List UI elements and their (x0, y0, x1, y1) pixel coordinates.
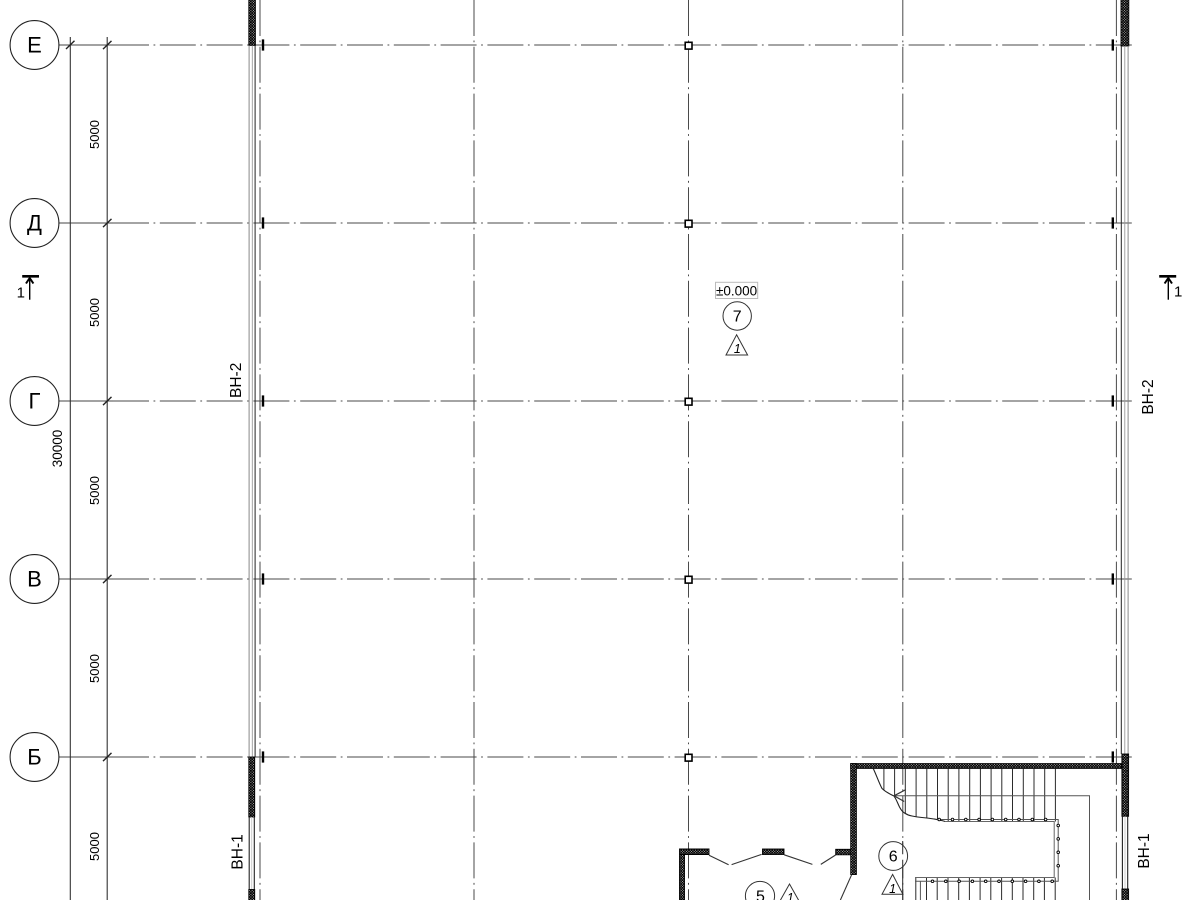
svg-text:6: 6 (889, 849, 898, 866)
svg-text:5000: 5000 (87, 832, 102, 861)
svg-text:30000: 30000 (50, 430, 65, 468)
svg-text:5000: 5000 (87, 476, 102, 505)
svg-text:1: 1 (17, 285, 25, 302)
svg-text:ВН-2: ВН-2 (228, 363, 245, 398)
svg-text:ВН-1: ВН-1 (1136, 833, 1153, 868)
svg-text:1: 1 (1174, 284, 1182, 301)
svg-text:ВН-2: ВН-2 (1140, 379, 1157, 414)
svg-text:5000: 5000 (87, 120, 102, 149)
svg-text:Д: Д (27, 211, 42, 236)
svg-text:±0.000: ±0.000 (716, 283, 757, 298)
svg-text:5: 5 (756, 889, 765, 901)
svg-text:ВН-1: ВН-1 (229, 834, 246, 869)
svg-text:Б: Б (27, 745, 41, 770)
svg-text:Е: Е (27, 33, 42, 58)
svg-text:5000: 5000 (87, 654, 102, 683)
svg-text:5000: 5000 (87, 298, 102, 327)
svg-text:1: 1 (734, 342, 741, 356)
svg-text:1: 1 (787, 891, 794, 900)
svg-text:1: 1 (889, 882, 896, 896)
svg-text:7: 7 (733, 309, 742, 326)
svg-text:В: В (27, 567, 42, 592)
svg-text:Г: Г (29, 389, 41, 414)
